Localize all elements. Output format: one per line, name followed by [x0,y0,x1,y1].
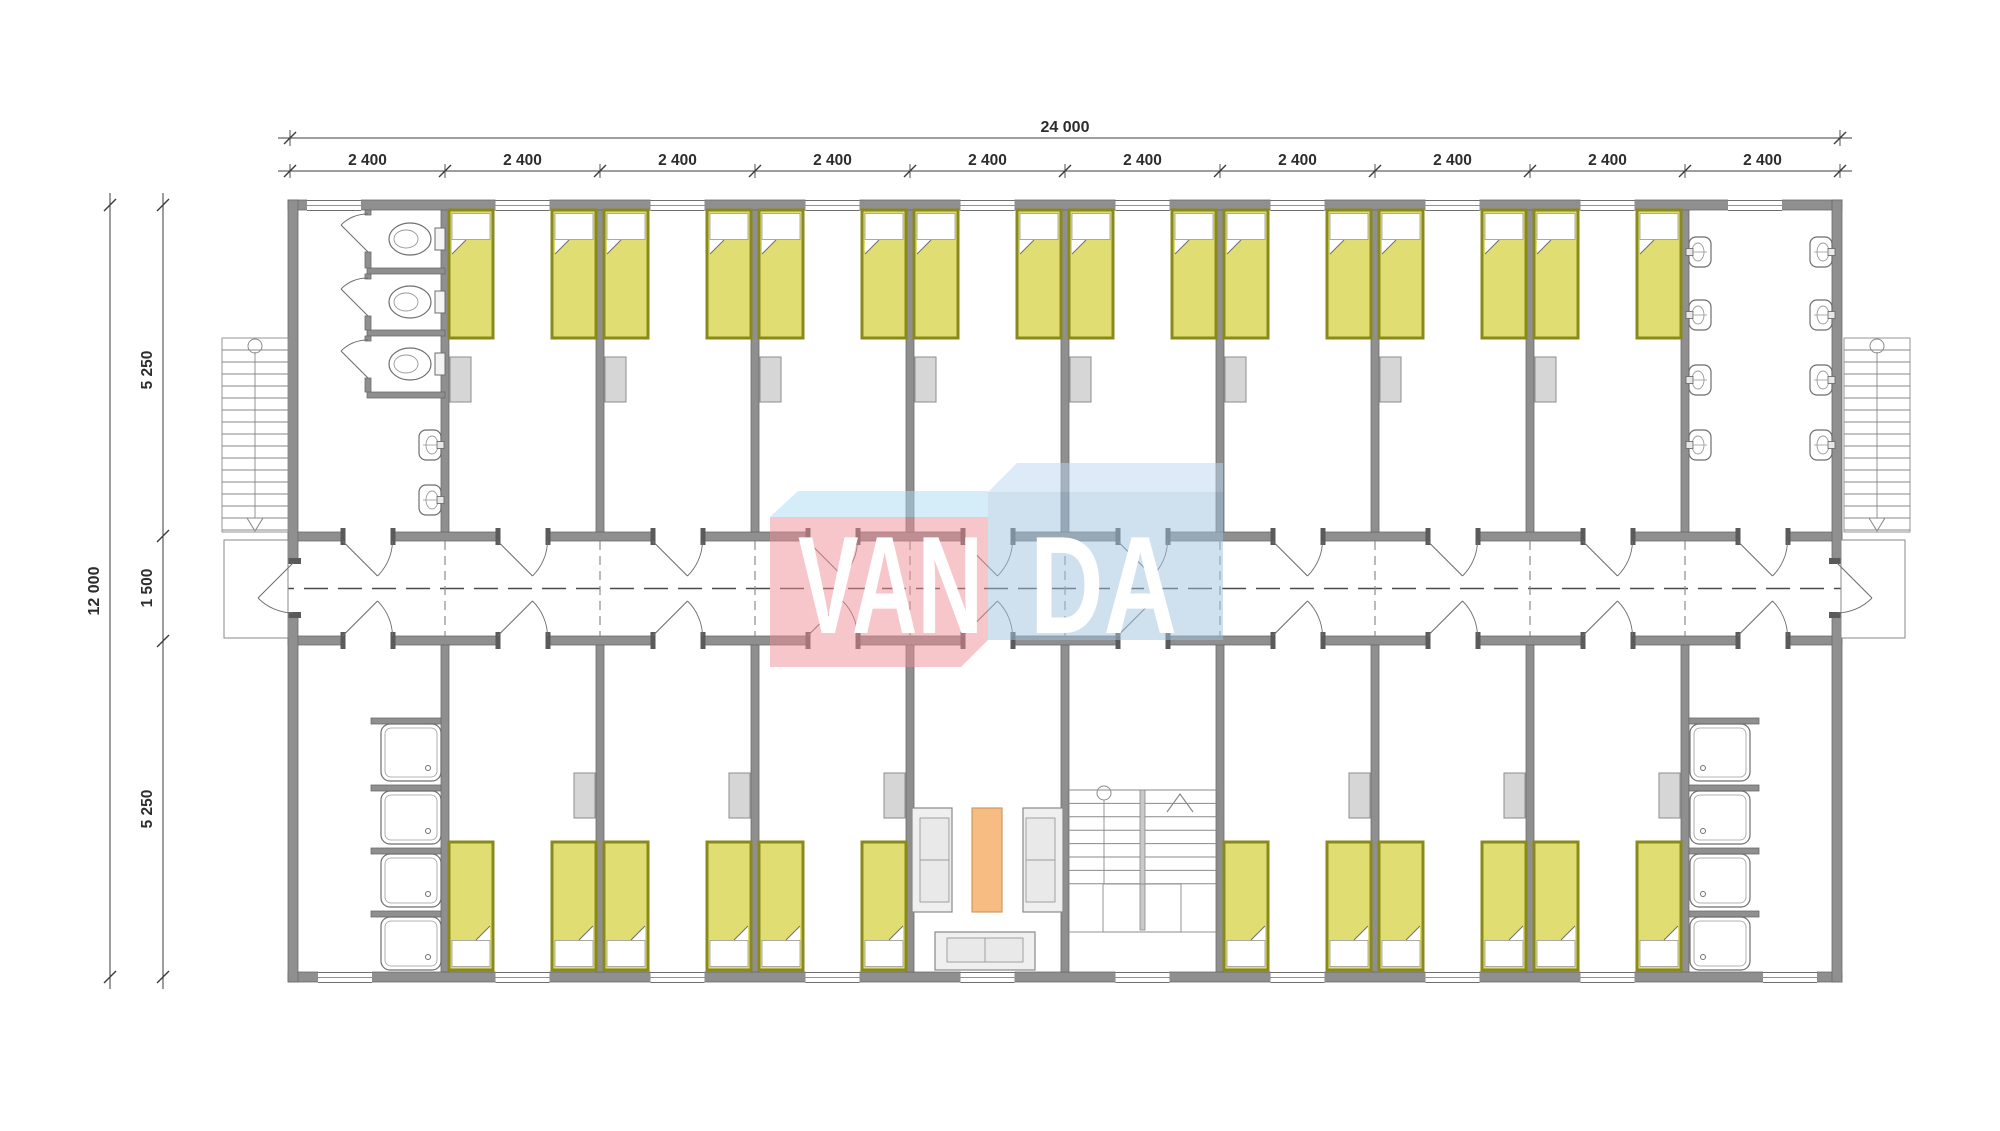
toilet [389,348,445,380]
dimension-label: 12 000 [86,566,103,615]
door-leaf [1273,541,1308,576]
bed-pillow [762,941,800,967]
door-arc [378,601,393,636]
external-staircase-left [222,338,288,532]
shower-tray [1690,917,1750,970]
door-jamb [1786,528,1791,545]
door-jamb [1581,528,1586,545]
bed-pillow [452,214,490,240]
floor-plan-drawing: VANDA24 0002 4002 4002 4002 4002 4002 40… [0,0,2000,1131]
door-leaf [653,601,688,636]
bed-pillow [452,941,490,967]
shower-tray-outer [381,854,441,907]
bed [759,210,803,338]
door-arc [1463,541,1478,576]
bed-pillow [1330,214,1368,240]
door-leaf [1583,541,1618,576]
bed-pillow [1227,941,1265,967]
dimension-label: 2 400 [658,152,697,169]
door-leaf [1583,601,1618,636]
bed [1534,210,1578,338]
watermark-text-left: VAN [798,508,983,663]
stall-door-arc [341,214,368,225]
bed [1327,210,1371,338]
bed-pillow [1382,941,1420,967]
bed-pillow [710,941,748,967]
door-leaf [1428,541,1463,576]
door-opening [1428,531,1478,542]
washbasin-tap [1828,249,1835,256]
wall [367,268,445,274]
dimension-label: 2 400 [503,152,542,169]
door-jamb [341,528,346,545]
bed-pillow [1485,941,1523,967]
washbasin-tap [1686,377,1693,384]
door-arc [533,541,548,576]
shower-tray [1690,724,1750,781]
dimension-label: 2 400 [1278,152,1317,169]
door-opening [1273,635,1323,646]
dimension-label: 2 400 [1123,152,1162,169]
stall-door-leaf [341,225,368,252]
bed-pillow [1640,214,1678,240]
bed-pillow [1175,214,1213,240]
locker [1535,357,1556,402]
door-arc [533,601,548,636]
door-opening [1738,635,1788,646]
bed [1327,842,1371,970]
wall [365,378,371,392]
wall [1689,785,1759,791]
shower-tray [381,917,441,970]
dimension-label: 2 400 [1743,152,1782,169]
washbasin [1810,237,1835,267]
stall-door-leaf [341,289,368,316]
door-jamb [391,528,396,545]
stall-door-arc [341,278,368,289]
door-opening [1583,635,1633,646]
door-jamb [1321,528,1326,545]
bed [1172,210,1216,338]
watermark-layer: VANDA [770,463,1223,667]
toilet-bowl [389,223,431,255]
bed-pillow [865,214,903,240]
bed [759,842,803,970]
door-arc [378,541,393,576]
stair-start-circle [1097,786,1111,800]
bed-pillow [1020,214,1058,240]
wall [367,392,445,398]
door-jamb [1736,632,1741,649]
wall [1689,718,1759,724]
bed [1224,842,1268,970]
door-opening [498,531,548,542]
dimension-label: 2 400 [968,152,1007,169]
door-jamb [341,632,346,649]
washbasin [1810,365,1835,395]
door-jamb [1581,632,1586,649]
door-arc [1773,601,1788,636]
door-jamb [496,632,501,649]
bed [1069,210,1113,338]
bed [552,842,596,970]
toilet [389,286,445,318]
washbasin [419,485,444,515]
door-leaf [343,601,378,636]
door-jamb [496,528,501,545]
watermark-text-right: DA [1030,508,1177,663]
dimension-label: 2 400 [813,152,852,169]
locker [450,357,471,402]
door-leaf [1428,601,1463,636]
bed [449,842,493,970]
door-opening [653,531,703,542]
shower-tray-outer [381,791,441,844]
door-jamb [701,632,706,649]
bed-pillow [555,214,593,240]
dimension-label: 5 250 [139,351,156,390]
shower-tray [1690,791,1750,844]
shower-tray-outer [1690,791,1750,844]
locker [884,773,905,818]
dimension-label: 24 000 [1041,119,1090,136]
bed [1017,210,1061,338]
door-jamb [1476,632,1481,649]
door-jamb [1631,632,1636,649]
bed [1637,842,1681,970]
door-leaf [1273,601,1308,636]
door-arc [688,541,703,576]
door-leaf [1738,541,1773,576]
lounge [912,808,1063,970]
bed [862,210,906,338]
locker [1225,357,1246,402]
door-opening [343,531,393,542]
bed-pillow [1640,941,1678,967]
door-opening [1738,531,1788,542]
door-arc [1308,541,1323,576]
door-jamb [1786,632,1791,649]
door-opening [1583,531,1633,542]
bed-pillow [607,214,645,240]
door-jamb [651,632,656,649]
door-arc [1463,601,1478,636]
dimension-label: 1 500 [139,569,156,608]
washbasin-tap [1828,442,1835,449]
washbasin-tap [1686,442,1693,449]
watermark-box-blue-top [988,463,1223,492]
washbasin [1810,430,1835,460]
shower-tray [1690,854,1750,907]
door-leaf [653,541,688,576]
washbasin-tap [1828,377,1835,384]
bed [1224,210,1268,338]
external-staircase-right [1844,338,1910,532]
door-jamb [1426,528,1431,545]
washbasin-tap [437,442,444,449]
bed [1379,842,1423,970]
washbasin [1686,300,1711,330]
dimension-label: 2 400 [1588,152,1627,169]
bed-pillow [1537,214,1575,240]
stall-door-arc [341,340,368,351]
bed [1534,842,1578,970]
door-jamb [651,528,656,545]
washbasin [419,430,444,460]
stall-door-leaf [341,351,368,378]
wall [1689,911,1759,917]
bed [552,210,596,338]
locker [1070,357,1091,402]
locker [729,773,750,818]
locker [574,773,595,818]
door-jamb [1736,528,1741,545]
toilet-bowl [389,286,431,318]
door-jamb [546,528,551,545]
bed-pillow [710,214,748,240]
bed-pillow [1382,214,1420,240]
dimension-label: 2 400 [1433,152,1472,169]
wall [371,848,441,854]
bed [1379,210,1423,338]
locker [605,357,626,402]
shower-tray-outer [1690,917,1750,970]
toilet-tank [435,353,445,375]
bed [862,842,906,970]
bed-pillow [917,214,955,240]
bed [449,210,493,338]
door-jamb [1271,528,1276,545]
door-opening [498,635,548,646]
door-jamb [1271,632,1276,649]
bed-pillow [607,941,645,967]
washbasin-tap [437,497,444,504]
door-opening [653,635,703,646]
locker [1380,357,1401,402]
bed [1637,210,1681,338]
locker [1504,773,1525,818]
bed [707,210,751,338]
locker [1349,773,1370,818]
bed-pillow [1537,941,1575,967]
bed [604,210,648,338]
toilet-tank [435,228,445,250]
shower-tray [381,724,441,781]
washbasin-tap [1828,312,1835,319]
bed-pillow [1330,941,1368,967]
stair-rail [1140,790,1145,930]
door-arc [1308,601,1323,636]
door-jamb [1631,528,1636,545]
bed [1482,210,1526,338]
washbasin-tap [1686,249,1693,256]
shower-tray [381,791,441,844]
door-arc [1618,601,1633,636]
door-opening [343,635,393,646]
bed-pillow [865,941,903,967]
door-jamb [391,632,396,649]
wall [365,316,371,330]
wall [365,252,371,268]
door-leaf [343,541,378,576]
bed [604,842,648,970]
coffee-table [972,808,1002,912]
locker [1659,773,1680,818]
washbasin [1686,237,1711,267]
door-arc [1773,541,1788,576]
floor-plan-page: VANDA24 0002 4002 4002 4002 4002 4002 40… [0,0,2000,1131]
toilet [389,223,445,255]
wall [371,785,441,791]
entrance-landing [224,540,288,638]
dimension-label: 2 400 [348,152,387,169]
door-jamb [1426,632,1431,649]
door-jamb [1476,528,1481,545]
bed [1482,842,1526,970]
wall [1689,848,1759,854]
bed [914,210,958,338]
toilet-tank [435,291,445,313]
shower-tray-outer [381,724,441,781]
washbasin [1810,300,1835,330]
door-arc [688,601,703,636]
door-opening [1428,635,1478,646]
shower-tray [381,854,441,907]
wall [371,718,441,724]
washbasin [1686,365,1711,395]
dimension-label: 5 250 [139,790,156,829]
door-leaf [498,601,533,636]
wall [371,911,441,917]
door-leaf [1738,601,1773,636]
bed [707,842,751,970]
door-jamb [1321,632,1326,649]
bed-pillow [762,214,800,240]
bed-pillow [1227,214,1265,240]
shower-tray-outer [1690,724,1750,781]
door-arc [1618,541,1633,576]
locker [760,357,781,402]
entrance-landing [1841,540,1905,638]
bed-pillow [1072,214,1110,240]
bed-pillow [555,941,593,967]
internal-staircase [1068,786,1218,932]
door-opening [1273,531,1323,542]
toilet-bowl [389,348,431,380]
washbasin-tap [1686,312,1693,319]
shower-tray-outer [381,917,441,970]
door-jamb [701,528,706,545]
door-jamb [546,632,551,649]
wall [367,330,445,336]
shower-tray-outer [1690,854,1750,907]
bed-pillow [1485,214,1523,240]
washbasin [1686,430,1711,460]
furniture-layer [912,808,1063,970]
door-leaf [498,541,533,576]
locker [915,357,936,402]
